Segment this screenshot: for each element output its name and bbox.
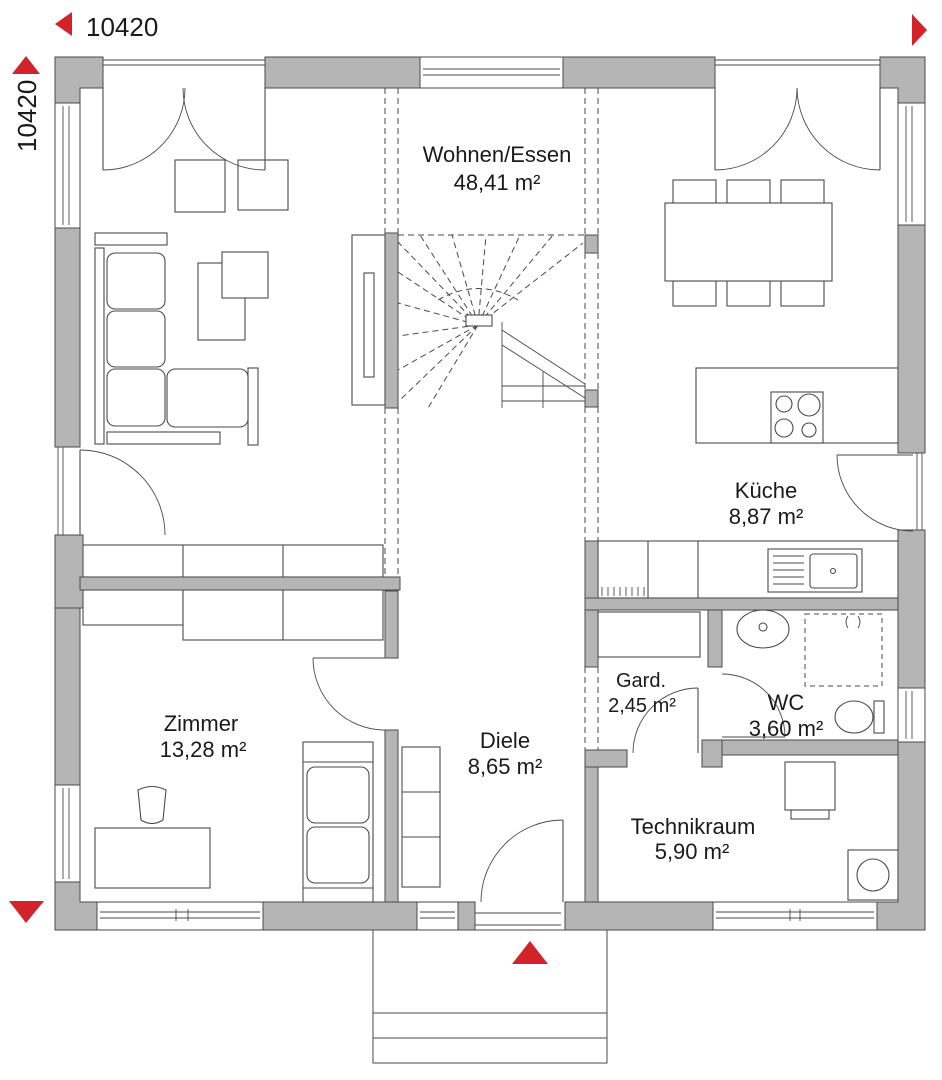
kitchen-side-door	[837, 453, 922, 531]
washing-machine	[848, 850, 898, 900]
room-label-diele: Diele	[480, 728, 530, 753]
exterior-wall	[55, 228, 80, 447]
exterior-wall-corner	[55, 882, 97, 930]
chair	[727, 180, 770, 204]
exterior-wall-corner	[877, 742, 925, 930]
dining-table	[665, 203, 832, 281]
interior-wall	[585, 598, 898, 610]
window-left-upper	[55, 103, 80, 228]
entrance-porch	[373, 930, 607, 1063]
floor-plan-canvas: Wohnen/Essen 48,41 m² Küche 8,87 m² Zimm…	[0, 0, 942, 1080]
chair	[673, 180, 716, 204]
tv-sideboard-inner	[364, 273, 374, 377]
desk	[95, 828, 210, 888]
room-label-wc: WC	[768, 690, 805, 715]
window-bottom-technik	[713, 902, 877, 930]
exterior-wall	[898, 225, 925, 453]
window-right-upper	[898, 103, 925, 225]
exterior-wall-corner	[55, 57, 103, 103]
interior-wall	[385, 730, 398, 902]
wall-stub	[585, 390, 598, 407]
garderobe-closet	[598, 612, 700, 657]
dimension-arrow-down-icon	[9, 901, 44, 923]
washbasin	[737, 610, 789, 648]
exterior-wall	[263, 902, 417, 930]
kitchen-sink	[768, 549, 862, 592]
room-area-kueche: 8,87 m²	[729, 504, 804, 529]
room-label-zimmer: Zimmer	[164, 711, 239, 736]
interior-wall	[585, 541, 598, 598]
exterior-wall	[563, 57, 715, 88]
dimension-arrow-left-icon	[55, 12, 72, 36]
window-right-wc	[898, 688, 925, 742]
dimension-width-label: 10420	[86, 12, 158, 42]
terrace-door	[58, 447, 165, 535]
room-area-garderobe: 2,45 m²	[608, 695, 676, 717]
interior-wall	[585, 610, 598, 667]
wardrobe	[83, 590, 183, 625]
exterior-wall	[55, 608, 80, 785]
bed	[303, 742, 373, 902]
window-left-lower	[55, 785, 80, 882]
interior-wall	[702, 740, 898, 755]
room-label-technikraum: Technikraum	[631, 814, 756, 839]
dining-furniture	[665, 180, 832, 306]
chair	[727, 281, 770, 306]
exterior-wall	[55, 535, 83, 608]
living-room-furniture	[83, 160, 385, 577]
room-area-technikraum: 5,90 m²	[655, 839, 730, 864]
window-bottom-zimmer	[97, 902, 263, 930]
dimension-arrow-right-icon	[912, 14, 927, 46]
interior-wall	[585, 767, 598, 902]
entrance-door	[475, 820, 563, 925]
hall-shelf	[402, 747, 440, 887]
wall-stub	[585, 235, 598, 253]
interior-wall	[708, 610, 722, 667]
exterior-wall	[565, 902, 713, 930]
exterior-wall	[265, 57, 420, 88]
window-top	[420, 57, 563, 88]
room-area-wohnen-essen: 48,41 m²	[454, 170, 541, 195]
toilet	[835, 701, 884, 733]
room-area-diele: 8,65 m²	[468, 754, 543, 779]
french-door-left	[103, 60, 265, 170]
stair-newel	[466, 315, 492, 326]
chair	[781, 281, 824, 306]
chair	[781, 180, 824, 204]
interior-wall	[585, 750, 627, 767]
wc-fixtures	[737, 610, 884, 733]
side-table	[175, 160, 225, 212]
room-label-wohnen-essen: Wohnen/Essen	[423, 142, 572, 167]
heating-unit	[785, 762, 835, 810]
dimension-arrow-up-icon	[12, 56, 40, 74]
technik-fixtures	[785, 762, 898, 900]
stair-wall	[385, 233, 398, 408]
staircase	[398, 235, 585, 408]
room-label-kueche: Küche	[735, 478, 797, 503]
exterior-wall	[898, 530, 925, 688]
exterior-wall-corner	[880, 57, 925, 105]
dimension-height-label: 10420	[12, 80, 42, 152]
interior-wall	[385, 591, 398, 658]
zimmer-door	[313, 658, 385, 730]
french-door-right	[715, 60, 880, 170]
interior-wall	[80, 577, 400, 590]
wall-stub	[702, 740, 722, 767]
exterior-wall	[458, 902, 475, 930]
room-area-zimmer: 13,28 m²	[160, 737, 247, 762]
floor-plan-drawing: Wohnen/Essen 48,41 m² Küche 8,87 m² Zimm…	[0, 0, 942, 1080]
coffee-table	[222, 252, 268, 298]
cooktop	[771, 392, 823, 443]
shower	[805, 614, 882, 686]
cabinet-row	[83, 545, 383, 577]
stair-lower-treads	[502, 322, 585, 408]
room-area-wc: 3,60 m²	[749, 716, 824, 741]
room-label-garderobe: Gard.	[616, 670, 666, 692]
window-bottom-small	[417, 902, 458, 930]
desk-chair	[138, 787, 166, 824]
chair	[673, 281, 716, 306]
